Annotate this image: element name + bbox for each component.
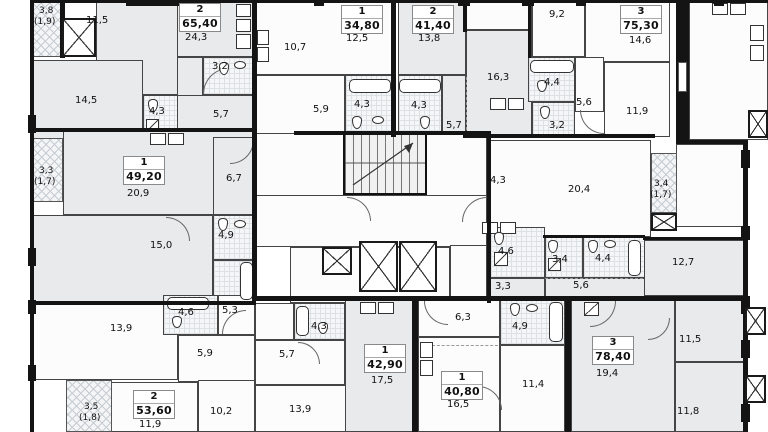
apartment-rooms-count: 2: [413, 6, 453, 19]
apartment-total-area: 42,90: [365, 358, 405, 372]
area-label-balcony-counted: (1,7): [650, 190, 671, 201]
apartment-card-78-40[interactable]: 3 78,40: [592, 336, 634, 365]
area-label: 20,4: [568, 184, 590, 195]
stove-icon: [150, 133, 166, 145]
counter-icon: [750, 45, 764, 61]
apartment-total-area: 41,40: [413, 19, 453, 33]
area-label: 16,3: [487, 72, 509, 83]
wall-baths-top: [543, 235, 645, 238]
area-label: 6,7: [226, 173, 242, 184]
bedroom-11-8: [675, 362, 745, 432]
area-label: 11,8: [677, 406, 699, 417]
wall-pier-top: [714, 0, 724, 6]
sink-icon: [508, 98, 524, 110]
kitchen-16-3: [466, 30, 532, 137]
area-label: 13,9: [289, 404, 311, 415]
stove-icon: [420, 342, 433, 358]
area-label: 13,9: [110, 323, 132, 334]
wall-pier-top: [576, 0, 586, 6]
sink-icon: [234, 220, 246, 228]
sink-icon: [372, 116, 384, 124]
wall-segment: [463, 0, 467, 32]
french-balcony-right: [745, 375, 766, 403]
sink-icon: [730, 3, 746, 15]
area-label-balcony-counted: (1,7): [34, 177, 55, 188]
apartment-total-area: 65,40: [180, 17, 220, 31]
bedroom-11-5-b: [675, 300, 745, 362]
area-label: 4,4: [595, 253, 611, 264]
shaft-top-right: [748, 110, 768, 138]
sink-icon: [526, 304, 538, 312]
french-balcony-right: [745, 307, 766, 335]
apartment-total-area: 34,80: [342, 19, 382, 33]
kitchen-zone-divider: [466, 77, 467, 135]
area-label: 13,8: [418, 33, 440, 44]
apartment-card-42-90[interactable]: 1 42,90: [364, 344, 406, 373]
area-label: 14,6: [629, 35, 651, 46]
bedroom-13-9-a: [33, 303, 178, 380]
area-label: 4,9: [218, 230, 234, 241]
area-label: 3,2: [549, 120, 565, 131]
hall-zone-divider: [545, 278, 643, 279]
area-label: 10,7: [284, 42, 306, 53]
area-label: 3,4: [552, 254, 568, 265]
area-label: 19,4: [596, 368, 618, 379]
bathtub-icon: [549, 302, 563, 342]
wall-left-band-upper: [30, 128, 256, 132]
apartment-card-75-30[interactable]: 3 75,30: [620, 5, 662, 34]
wall-pier: [28, 248, 36, 266]
apartment-total-area: 40,80: [442, 385, 482, 399]
wall-apartment-divider: [391, 0, 396, 137]
fridge-icon: [236, 34, 251, 49]
door-arc: [580, 110, 604, 134]
apartment-rooms-count: 3: [621, 6, 661, 19]
wall-42-40-divider: [412, 300, 418, 432]
area-label: 11,5: [86, 15, 108, 26]
apartment-rooms-count: 2: [180, 4, 220, 17]
apartment-rooms-count: 2: [134, 391, 174, 404]
floor-plan: 3,8 (1,9) 11,5 24,3 3,2 14,5 4,3 5,7 10,…: [0, 0, 768, 432]
entry-42-90: [255, 303, 294, 340]
bathtub-icon: [399, 79, 441, 93]
stair-direction-arrow: [343, 131, 427, 195]
area-label: 4,4: [544, 77, 560, 88]
area-label: 12,7: [672, 257, 694, 268]
area-label: 11,4: [522, 379, 544, 390]
area-label: 4,3: [354, 99, 370, 110]
area-label: 20,9: [127, 188, 149, 199]
apartment-rooms-count: 1: [365, 345, 405, 358]
stove-icon: [257, 30, 269, 45]
area-label: 4,3: [411, 100, 427, 111]
area-label: 5,9: [197, 348, 213, 359]
area-label: 5,6: [573, 280, 589, 291]
balcony-shaft-right-mid: [651, 213, 677, 231]
area-label: 5,3: [222, 305, 238, 316]
stove-icon: [236, 4, 251, 17]
corridor-main: [255, 195, 487, 247]
corridor-south: [450, 245, 487, 303]
wall-pier-right: [741, 150, 750, 168]
wall-12-7-top: [643, 237, 745, 240]
area-label-balcony: 3,8: [39, 6, 53, 17]
area-label: 3,3: [495, 281, 511, 292]
area-label: 5,6: [576, 97, 592, 108]
area-label: 24,3: [185, 32, 207, 43]
apartment-card-65-40[interactable]: 2 65,40: [179, 3, 221, 32]
area-label-balcony: 3,4: [654, 179, 668, 190]
area-label: 5,9: [313, 104, 329, 115]
service-shaft: [322, 247, 352, 275]
area-label: 4,3: [490, 175, 506, 186]
apartment-rooms-count: 3: [593, 337, 633, 350]
area-label: 9,2: [549, 9, 565, 20]
area-label: 5,7: [446, 120, 462, 131]
wall-pier-top: [314, 0, 324, 6]
entry-zone-divider: [432, 345, 498, 346]
area-label: 4,9: [512, 321, 528, 332]
hall-5-9: [255, 75, 345, 137]
area-label: 4,3: [311, 321, 327, 332]
apartment-card-34-80[interactable]: 1 34,80: [341, 5, 383, 34]
wall-pier: [28, 365, 36, 381]
wall-mid-band: [463, 134, 655, 138]
wall-pier-top: [126, 0, 180, 6]
wall-mid-band-right: [676, 140, 748, 144]
area-label: 14,5: [75, 95, 97, 106]
area-label: 11,5: [679, 334, 701, 345]
apartment-card-53-60[interactable]: 2 53,60: [133, 390, 175, 419]
apartment-card-40-80[interactable]: 1 40,80: [441, 371, 483, 400]
area-label: 16,5: [447, 399, 469, 410]
washer-icon: [584, 302, 599, 316]
bedroom-11-9-a: [604, 62, 670, 137]
stove-icon: [378, 302, 394, 314]
area-label: 15,0: [150, 240, 172, 251]
bathtub-icon: [628, 240, 641, 276]
area-label: 3,2: [212, 61, 228, 72]
area-label: 4,6: [498, 246, 514, 257]
apartment-card-41-40[interactable]: 2 41,40: [412, 5, 454, 34]
window: [678, 62, 687, 92]
sink-icon: [168, 133, 184, 145]
area-label: 11,9: [626, 106, 648, 117]
wall-pier-right: [741, 340, 750, 358]
sink-icon: [360, 302, 376, 314]
area-label: 4,3: [149, 106, 165, 117]
apartment-rooms-count: 1: [124, 157, 164, 170]
bathtub-icon: [530, 60, 574, 73]
apartment-rooms-count: 1: [442, 372, 482, 385]
area-label: 5,7: [279, 349, 295, 360]
area-label: 6,3: [455, 312, 471, 323]
wall-pier-right: [741, 404, 750, 422]
counter-icon: [750, 25, 764, 41]
area-label: 12,5: [346, 33, 368, 44]
wall-core-right: [487, 131, 491, 303]
elevator-shaft: [359, 241, 398, 292]
bathtub-icon: [349, 79, 391, 93]
apartment-rooms-count: 1: [342, 6, 382, 19]
elevator-shaft: [399, 241, 437, 292]
sink-icon: [236, 19, 251, 32]
apartment-total-area: 49,20: [124, 170, 164, 184]
sink-icon: [604, 240, 616, 248]
wall-between-blocks-left: [252, 0, 257, 300]
hall-5-9-b: [178, 335, 255, 382]
area-label-balcony: 3,3: [39, 166, 53, 177]
area-label: 10,2: [210, 406, 232, 417]
area-label: 4,6: [178, 307, 194, 318]
apartment-total-area: 78,40: [593, 350, 633, 364]
area-label-balcony-counted: (1,9): [34, 17, 55, 28]
stove-icon: [490, 98, 506, 110]
bathtub-icon: [296, 306, 309, 336]
bedroom-12-7: [643, 240, 745, 296]
apartment-total-area: 75,30: [621, 19, 661, 33]
area-label-balcony: 3,5: [84, 402, 98, 413]
wall-40-78-divider: [565, 300, 571, 432]
apartment-card-49-20[interactable]: 1 49,20: [123, 156, 165, 185]
wall-segment: [528, 0, 531, 58]
area-label: 17,5: [371, 375, 393, 386]
cropped-room-mid-right: [676, 144, 745, 227]
apartment-total-area: 53,60: [134, 404, 174, 418]
area-label-balcony-counted: (1,8): [79, 413, 100, 424]
sink-icon: [420, 360, 433, 376]
area-label: 5,7: [213, 109, 229, 120]
area-label: 11,9: [139, 419, 161, 430]
sink-icon: [234, 61, 246, 69]
wall-corridor-south: [252, 296, 750, 301]
sink-icon: [257, 47, 269, 62]
